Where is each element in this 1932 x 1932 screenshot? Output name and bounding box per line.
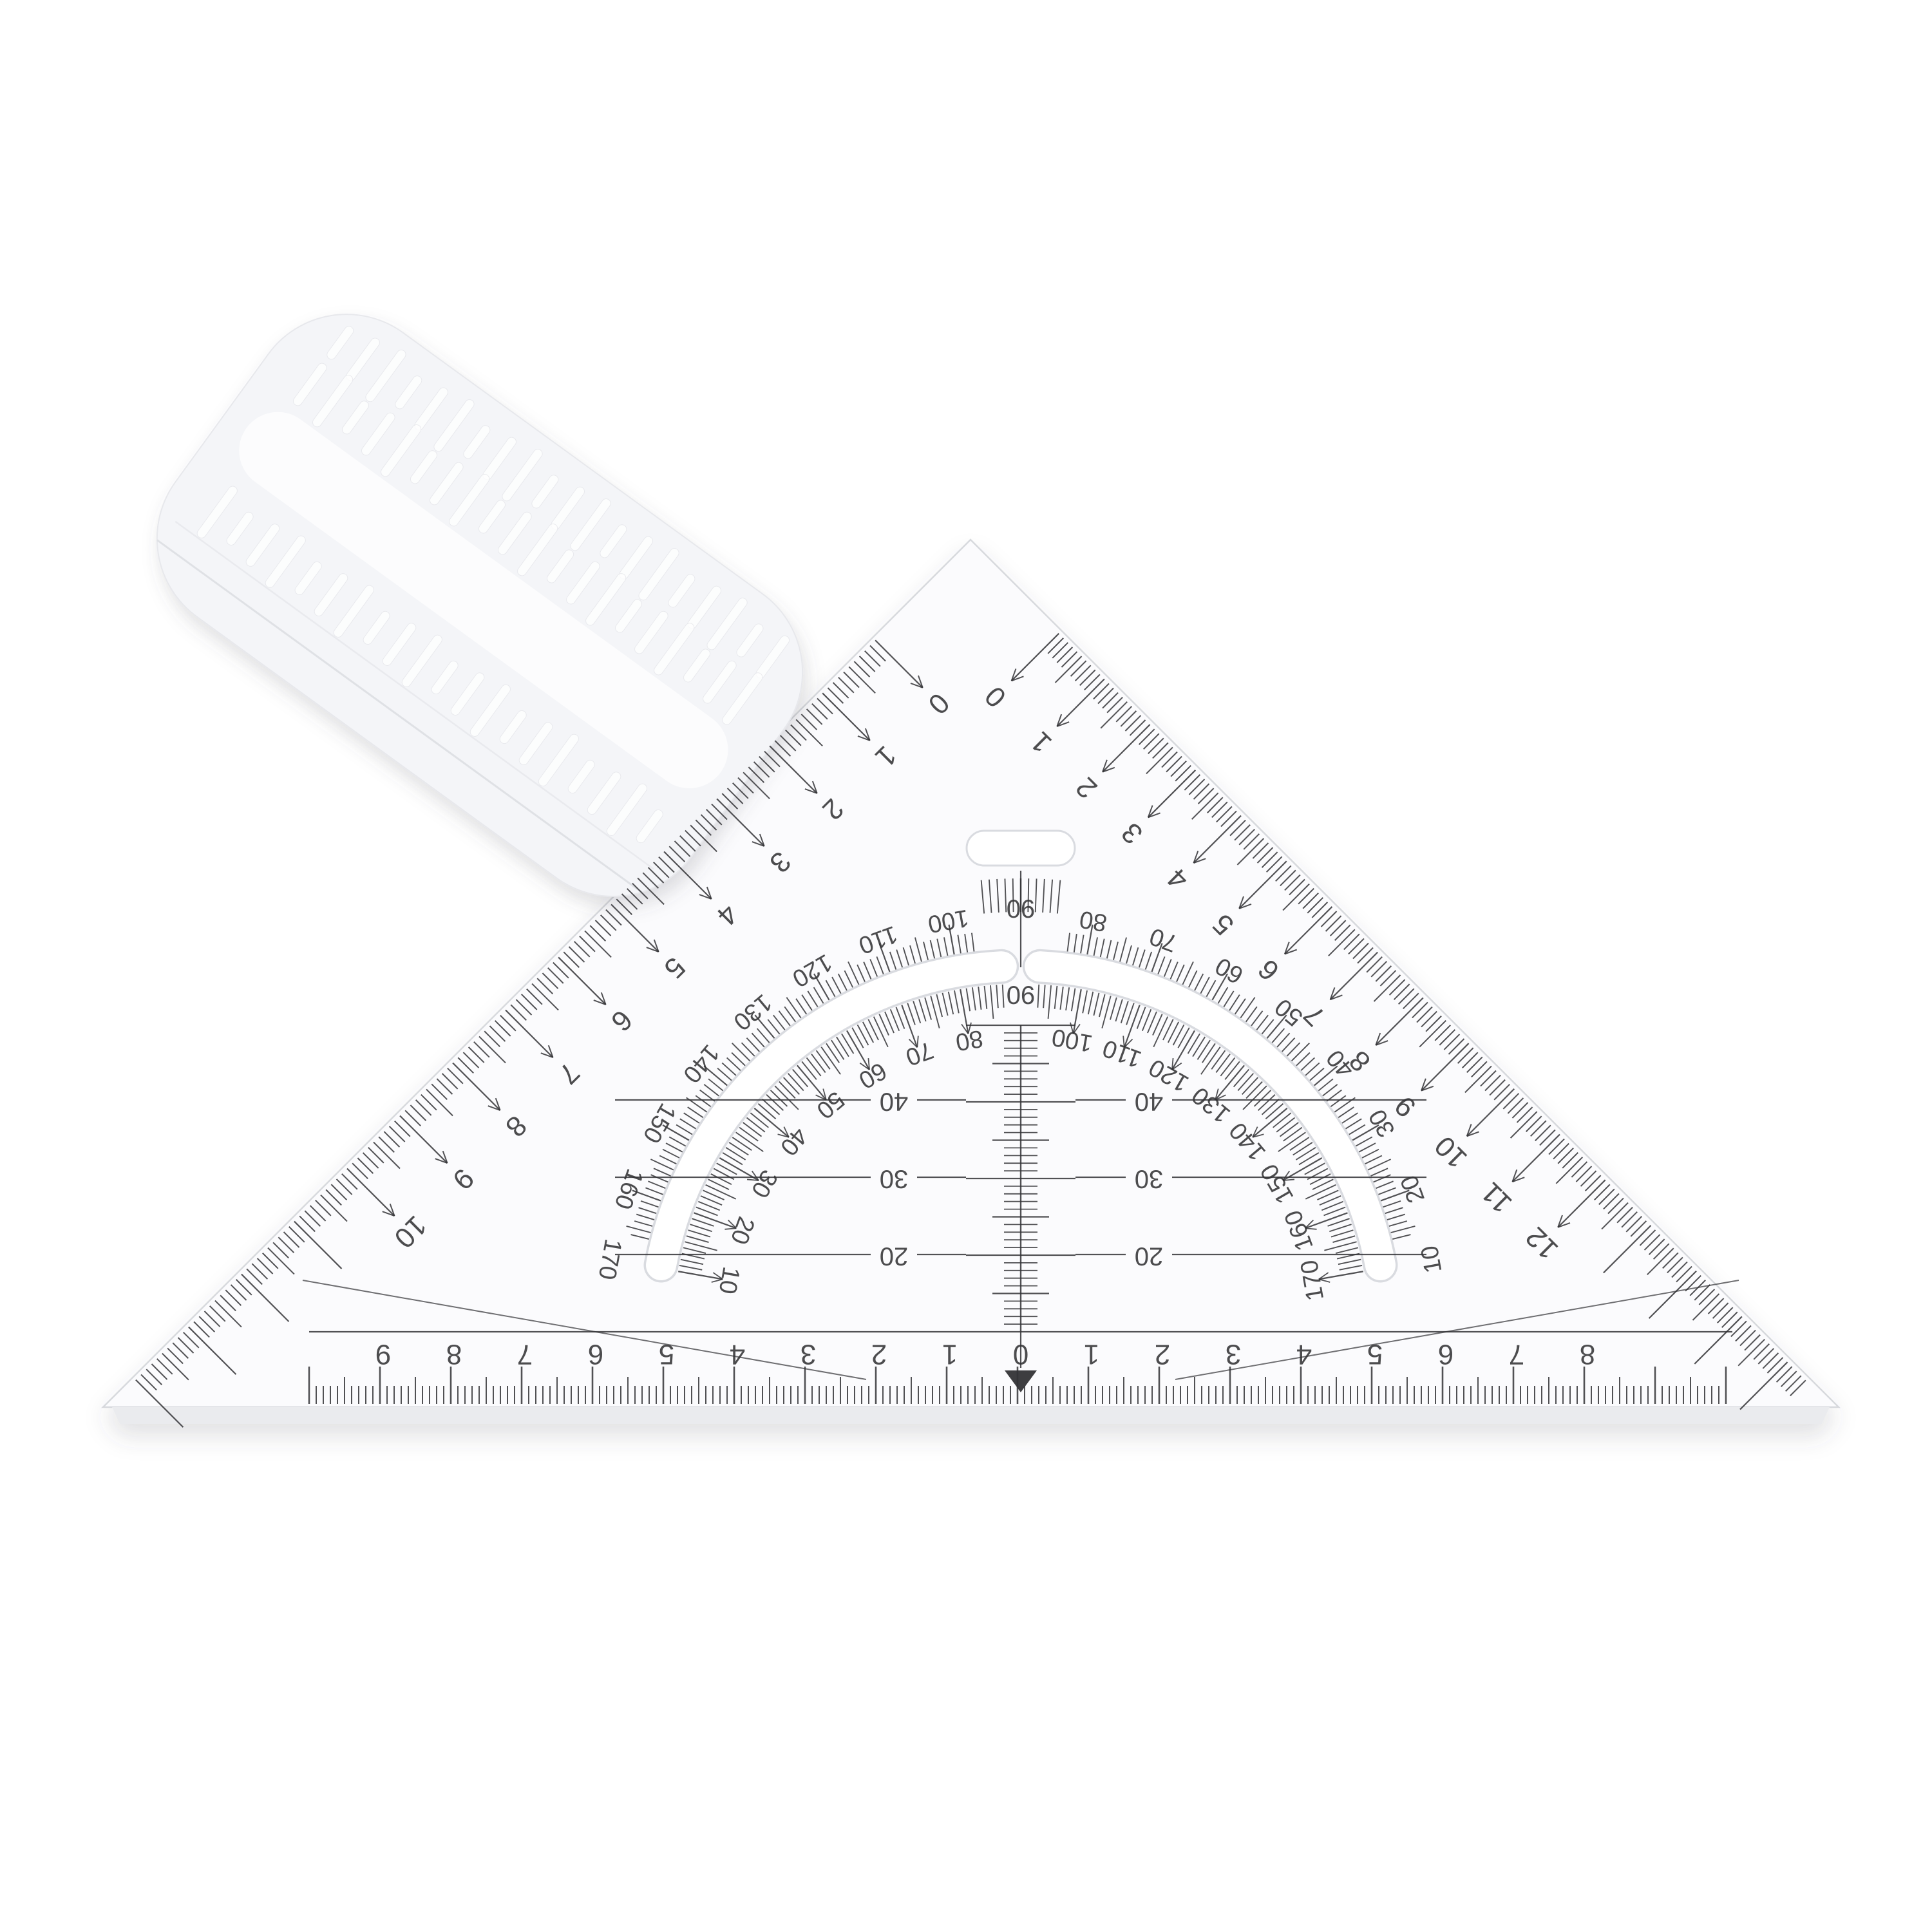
outer-scale-label: 80	[1077, 905, 1109, 936]
outer-scale-label: 10	[1416, 1244, 1448, 1275]
bottom-label-right: 8	[1580, 1338, 1595, 1370]
bottom-label-left: 7	[517, 1338, 533, 1370]
bottom-label-right: 6	[1438, 1338, 1454, 1370]
bottom-bevel	[112, 1407, 1830, 1424]
product-photo: 9876543210123456780123456789100123456789…	[0, 0, 1932, 1932]
bottom-label-left: 8	[446, 1338, 462, 1370]
bottom-label-left: 1	[942, 1338, 958, 1370]
bottom-label-left: 4	[730, 1338, 745, 1370]
bottom-label-right: 2	[1155, 1338, 1170, 1370]
parallel-row-label-left: 40	[880, 1087, 909, 1115]
parallel-row-label-right: 40	[1135, 1087, 1164, 1115]
inner-scale-label: 80	[954, 1025, 985, 1056]
parallel-row-label-right: 30	[1135, 1164, 1164, 1193]
parallel-row-label-left: 20	[880, 1242, 909, 1270]
bottom-label-right: 3	[1226, 1338, 1241, 1370]
parallel-row-label-left: 30	[880, 1164, 909, 1193]
set-square-illustration: 9876543210123456780123456789100123456789…	[0, 0, 1932, 1932]
inner-scale-label: 10	[714, 1265, 745, 1296]
finger-slot	[967, 831, 1075, 866]
bottom-label-left: 6	[588, 1338, 603, 1370]
bottom-label-left: 9	[375, 1338, 391, 1370]
bottom-label-left: 2	[871, 1338, 887, 1370]
bottom-label-right: 7	[1509, 1338, 1524, 1370]
bottom-label-right: 4	[1296, 1338, 1312, 1370]
bottom-label-left: 3	[800, 1338, 816, 1370]
parallel-row-label-right: 20	[1135, 1242, 1164, 1270]
inner-90-label: 90	[1007, 980, 1036, 1009]
bottom-label-right: 1	[1084, 1338, 1099, 1370]
